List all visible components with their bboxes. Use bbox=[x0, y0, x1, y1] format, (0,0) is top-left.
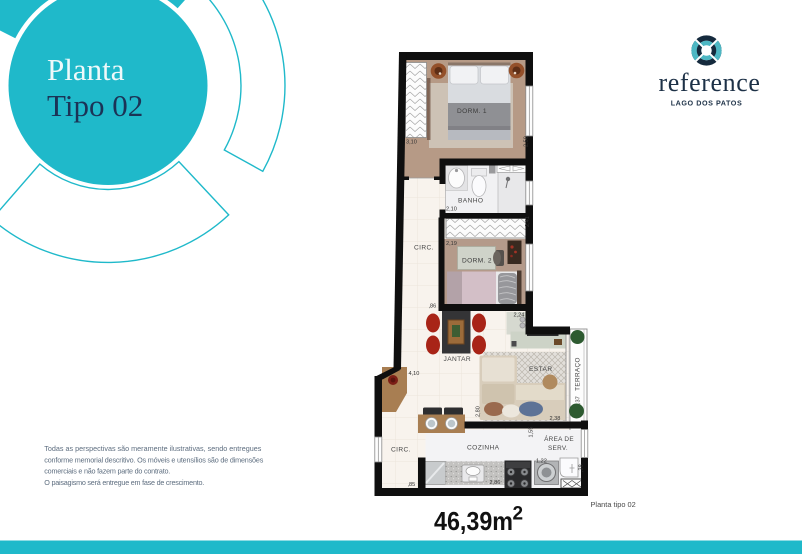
svg-text:Todas as perspectivas são mera: Todas as perspectivas são meramente ilus… bbox=[44, 444, 261, 453]
svg-text:CIRC.: CIRC. bbox=[414, 245, 434, 252]
svg-text:O paisagismo será entregue em: O paisagismo será entregue em fase de cr… bbox=[44, 478, 204, 487]
svg-text:2,41: 2,41 bbox=[525, 216, 531, 227]
svg-text:Planta: Planta bbox=[47, 52, 125, 87]
svg-text:Planta tipo 02: Planta tipo 02 bbox=[591, 500, 636, 509]
svg-text:,85: ,85 bbox=[408, 482, 416, 488]
svg-text:46,39m: 46,39m bbox=[434, 506, 513, 536]
svg-text:2,10: 2,10 bbox=[446, 207, 457, 213]
svg-text:2,19: 2,19 bbox=[446, 241, 457, 247]
svg-text:COZINHA: COZINHA bbox=[467, 445, 500, 452]
svg-text:DORM. 2: DORM. 2 bbox=[462, 258, 492, 265]
svg-text:2,24: 2,24 bbox=[514, 313, 525, 319]
svg-text:2,50: 2,50 bbox=[524, 136, 530, 147]
svg-text:2: 2 bbox=[513, 504, 524, 525]
svg-text:2,38: 2,38 bbox=[550, 416, 561, 422]
svg-text:TERRAÇO: TERRAÇO bbox=[575, 357, 582, 391]
svg-text:conforme memorial descritivo.: conforme memorial descritivo. Os móveis … bbox=[44, 455, 263, 464]
svg-text:comerciais e não fazem parte d: comerciais e não fazem parte do contrato… bbox=[44, 467, 170, 476]
svg-text:3,10: 3,10 bbox=[406, 140, 417, 146]
svg-text:JANTAR: JANTAR bbox=[444, 356, 472, 363]
svg-text:DORM. 1: DORM. 1 bbox=[457, 108, 487, 115]
svg-text:ESTAR: ESTAR bbox=[529, 366, 553, 373]
svg-text:2,80: 2,80 bbox=[476, 406, 482, 417]
svg-text:reference: reference bbox=[658, 68, 760, 97]
svg-text:LAGO DOS PATOS: LAGO DOS PATOS bbox=[671, 99, 743, 108]
svg-text:1,55: 1,55 bbox=[529, 427, 535, 438]
svg-text:1,22: 1,22 bbox=[536, 459, 547, 465]
svg-text:2,86: 2,86 bbox=[490, 480, 501, 486]
svg-text:,86: ,86 bbox=[429, 304, 437, 310]
svg-text:ÁREA DE: ÁREA DE bbox=[544, 434, 574, 443]
svg-text:BANHO: BANHO bbox=[458, 198, 483, 205]
svg-text:CIRC.: CIRC. bbox=[391, 447, 411, 454]
svg-text:,38: ,38 bbox=[579, 464, 585, 472]
svg-text:4,10: 4,10 bbox=[409, 371, 420, 377]
svg-text:SERV.: SERV. bbox=[548, 445, 568, 452]
svg-text:,37: ,37 bbox=[576, 396, 582, 404]
svg-text:Tipo 02: Tipo 02 bbox=[47, 88, 143, 123]
